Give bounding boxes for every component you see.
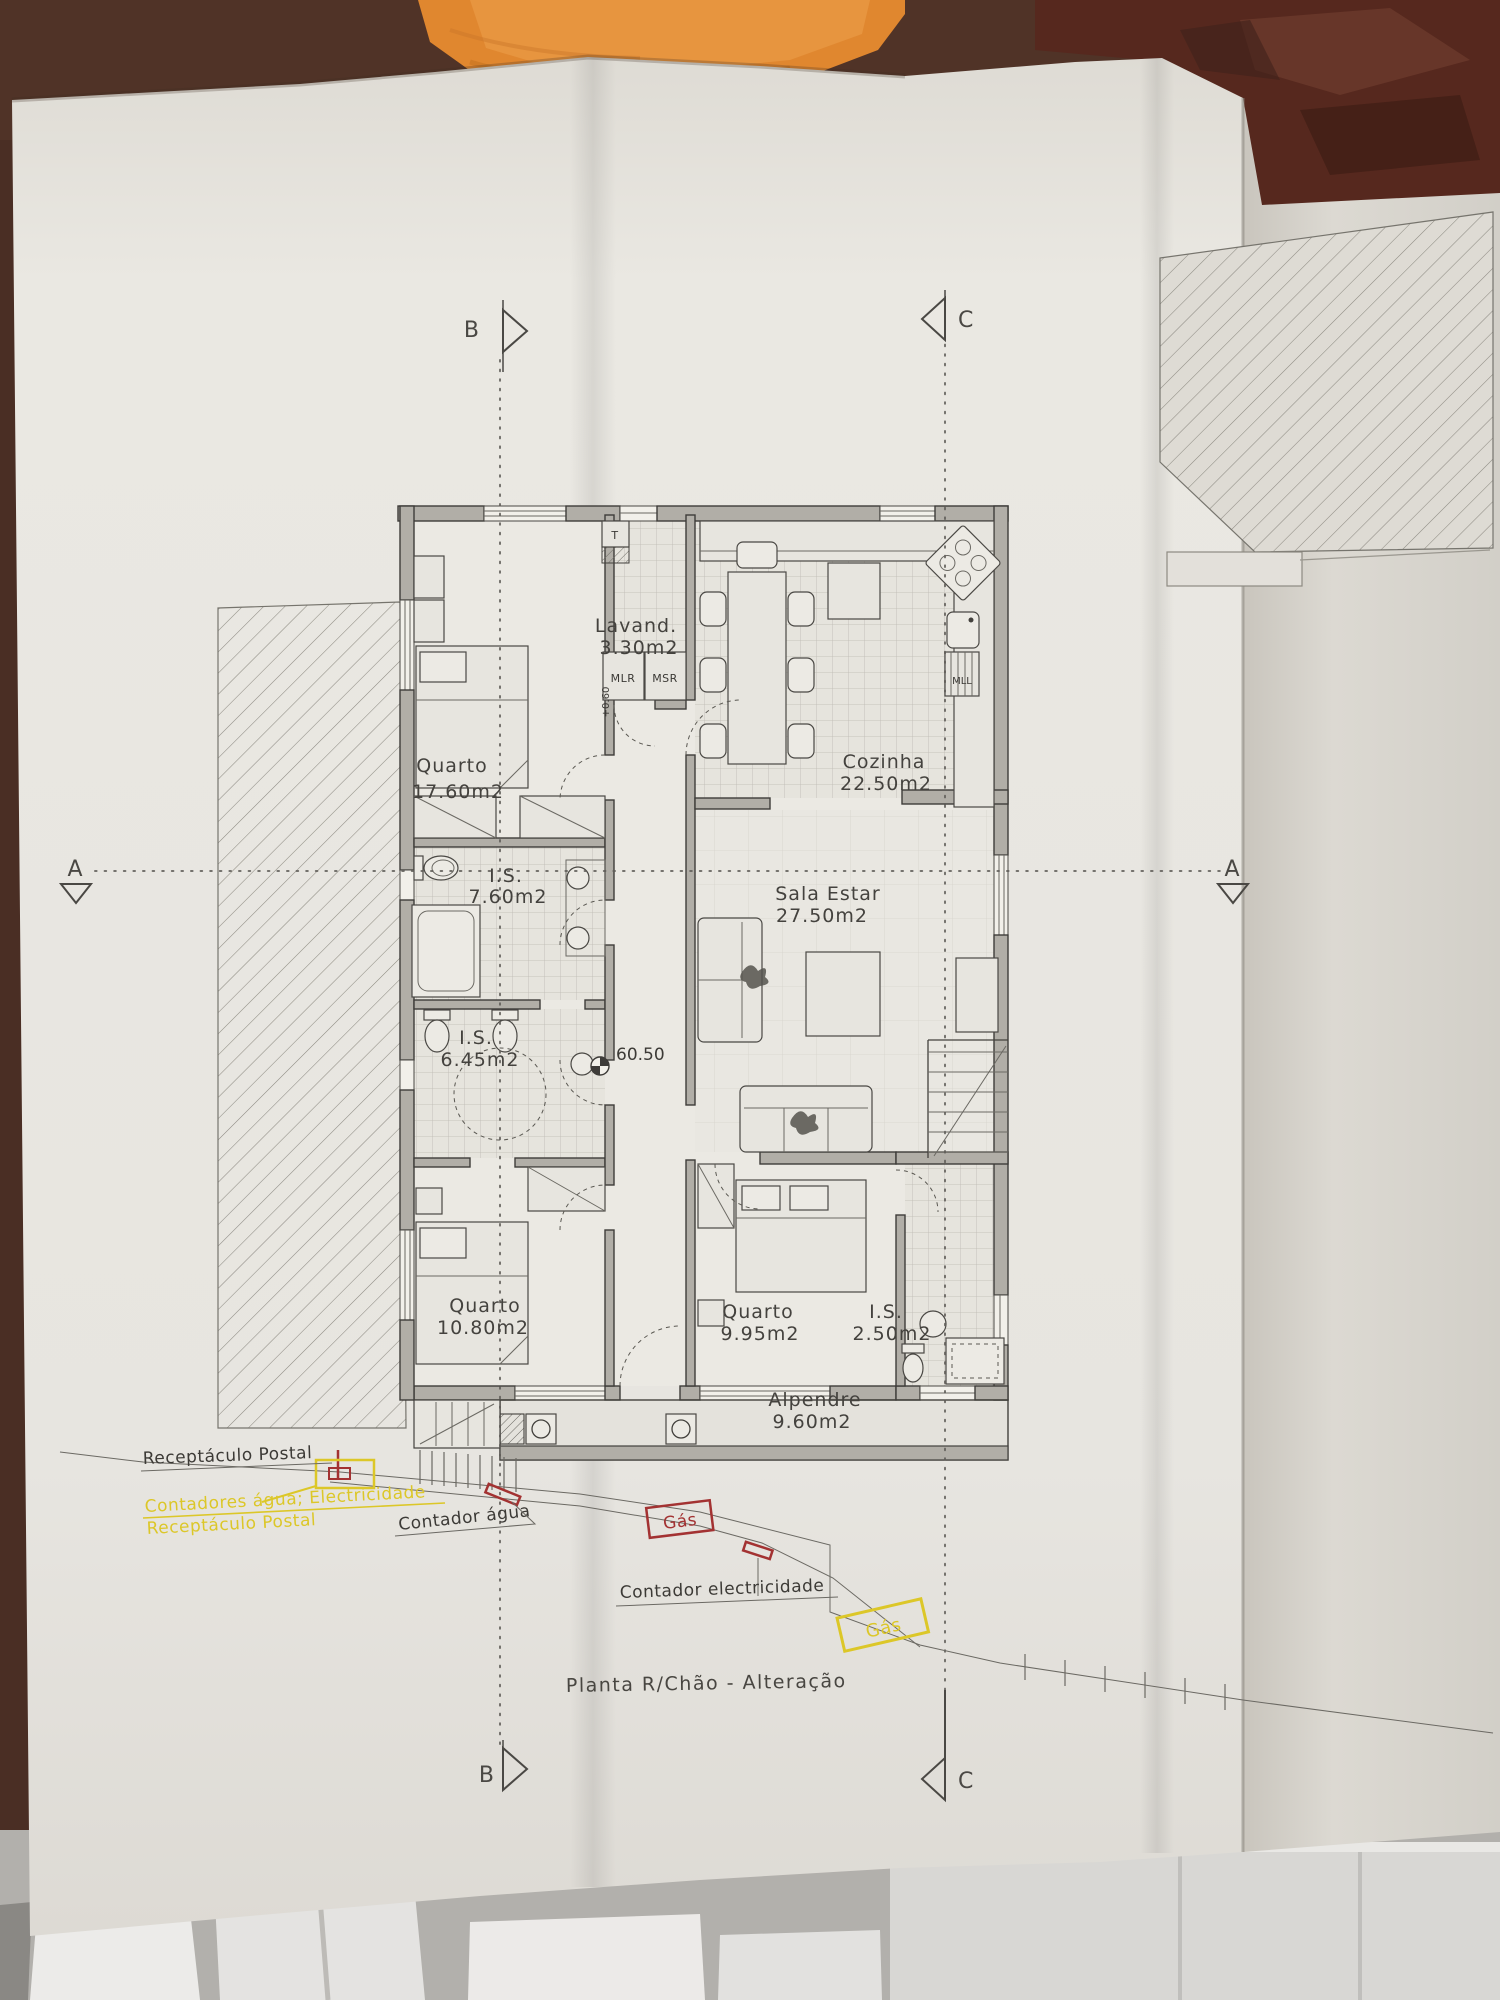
photo-of-floor-plan: B C A A B C Quarto 17.60m2 Lav: [0, 0, 1500, 2000]
sink: [947, 612, 979, 648]
dishwasher: [945, 652, 979, 696]
marker-a-right-label: A: [1224, 857, 1239, 882]
label-living-name: Sala Estar: [775, 883, 880, 905]
porch-column: [526, 1414, 556, 1444]
step-level-label: +0.60: [601, 687, 612, 718]
floor-level-label: 60.50: [616, 1045, 665, 1065]
entry-steps: [414, 1400, 500, 1448]
label-bath1-area: 7.60m2: [469, 886, 548, 908]
marker-c-bottom-label: C: [958, 1769, 973, 1794]
washer-label: MLR: [611, 672, 636, 685]
label-bedroom2-area: 9.95m2: [721, 1323, 800, 1345]
label-living-area: 27.50m2: [776, 905, 868, 927]
marker-b-top-label: B: [464, 318, 479, 343]
label-bath1-name: I.S.: [489, 865, 523, 887]
right-fold-detail: [1167, 552, 1302, 586]
neighbor-hatch-left: [218, 602, 406, 1428]
label-bath3-name: I.S.: [869, 1301, 903, 1323]
label-bedroom1-name: Quarto: [416, 755, 488, 777]
label-bath2-area: 6.45m2: [441, 1049, 520, 1071]
kitchen-island: [828, 563, 880, 619]
porch-column-2: [666, 1414, 696, 1444]
label-bedroom3-area: 10.80m2: [437, 1317, 529, 1339]
dishwasher-label: MLL: [952, 676, 972, 687]
marker-c-top-label: C: [958, 308, 973, 333]
label-bath2-name: I.S.: [459, 1027, 493, 1049]
floor-plan-photo-svg: B C A A B C Quarto 17.60m2 Lav: [0, 0, 1500, 2000]
label-laundry-area: 3.30m2: [600, 637, 679, 659]
label-porch-name: Alpendre: [768, 1389, 861, 1411]
label-porch-area: 9.60m2: [773, 1411, 852, 1433]
label-bedroom1-area: 17.60m2: [412, 781, 504, 803]
porch-step-edge: [500, 1446, 1008, 1460]
label-bedroom2-name: Quarto: [722, 1301, 794, 1323]
porch-pier: [500, 1414, 524, 1444]
label-bath3-area: 2.50m2: [853, 1323, 932, 1345]
label-kitchen-name: Cozinha: [843, 751, 926, 773]
label-laundry-name: Lavand.: [595, 615, 677, 637]
label-bedroom3-name: Quarto: [449, 1295, 521, 1317]
marker-a-left-label: A: [67, 857, 82, 882]
water-heater-label: T: [610, 529, 618, 542]
label-kitchen-area: 22.50m2: [840, 773, 932, 795]
dryer-label: MSR: [652, 672, 678, 685]
gas-label-red: Gás: [662, 1510, 698, 1534]
marker-b-bottom-label: B: [479, 1763, 494, 1788]
